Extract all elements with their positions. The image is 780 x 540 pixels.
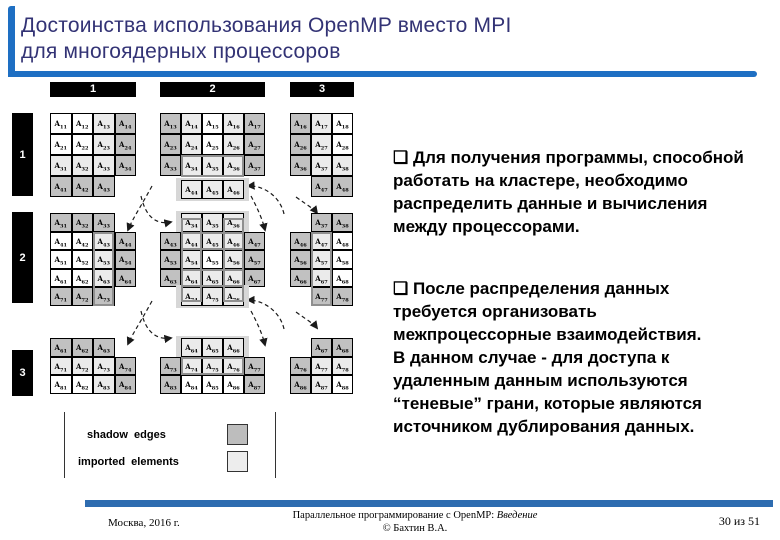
- matrix-cell-A76: A76: [290, 357, 311, 376]
- matrix-cell-A55: A55: [202, 250, 223, 269]
- matrix-cell-A83: A83: [93, 375, 115, 394]
- matrix-cell-A32: A32: [72, 213, 94, 232]
- matrix-cell-A43: A43: [93, 176, 115, 197]
- matrix-cell-A26: A26: [290, 134, 311, 155]
- exchange-outline-box: [181, 357, 244, 376]
- matrix-cell-A23: A23: [160, 134, 181, 155]
- matrix-cell-A44: A44: [115, 232, 137, 251]
- matrix-cell-A17: A17: [311, 113, 332, 134]
- matrix-cell-A67: A67: [311, 338, 332, 357]
- matrix-cell-A66: A66: [290, 269, 311, 288]
- legend-guide-line: [64, 412, 65, 478]
- matrix-cell-A33: A33: [160, 155, 181, 176]
- matrix-cell-A37: A37: [311, 155, 332, 176]
- exchange-outline-box: [223, 218, 244, 302]
- matrix-cell-A75: A75: [202, 287, 223, 306]
- matrix-cell-A11: A11: [50, 113, 72, 134]
- shadow-exchange-arrow: [128, 186, 152, 230]
- matrix-cell-A27: A27: [244, 134, 265, 155]
- matrix-cell-A15: A15: [202, 113, 223, 134]
- matrix-cell-A87: A87: [244, 375, 265, 394]
- matrix-cell-A56: A56: [290, 250, 311, 269]
- footer-author: © Бахтин В.А.: [250, 522, 580, 535]
- matrix-cell-A35: A35: [202, 213, 223, 232]
- matrix-cell-A16: A16: [223, 113, 244, 134]
- footer-location-date: Москва, 2016 г.: [108, 517, 180, 529]
- matrix-cell-A71: A71: [50, 357, 72, 376]
- matrix-cell-A65: A65: [202, 338, 223, 357]
- shadow-exchange-arrow: [248, 186, 284, 214]
- matrix-cell-A28: A28: [332, 134, 353, 155]
- matrix-cell-A83: A83: [160, 375, 181, 394]
- matrix-cell-A78: A78: [332, 357, 353, 376]
- matrix-cell-A26: A26: [223, 134, 244, 155]
- matrix-cell-A64: A64: [115, 269, 137, 288]
- exchange-outline-box: [181, 218, 202, 302]
- matrix-cell-A33: A33: [93, 213, 115, 232]
- exchange-outline-box: [311, 232, 332, 306]
- matrix-cell-A24: A24: [181, 134, 202, 155]
- matrix-cell-A37: A37: [244, 155, 265, 176]
- matrix-cell-A57: A57: [244, 250, 265, 269]
- processor-row-bar-2: 2: [12, 212, 33, 303]
- matrix-cell-A13: A13: [160, 113, 181, 134]
- matrix-cell-A44: A44: [181, 180, 202, 199]
- matrix-cell-A25: A25: [202, 134, 223, 155]
- matrix-cell-A46: A46: [290, 232, 311, 251]
- matrix-cell-A84: A84: [181, 375, 202, 394]
- matrix-cell-A47: A47: [311, 176, 332, 197]
- matrix-cell-A84: A84: [115, 375, 137, 394]
- matrix-cell-A62: A62: [72, 269, 94, 288]
- footer-course-title-italic: Введение: [497, 510, 538, 521]
- matrix-cell-A42: A42: [72, 232, 94, 251]
- matrix-cell-A41: A41: [50, 176, 72, 197]
- matrix-cell-A68: A68: [332, 269, 353, 288]
- matrix-cell-A42: A42: [72, 176, 94, 197]
- matrix-cell-A66: A66: [223, 338, 244, 357]
- matrix-cell-A36: A36: [290, 155, 311, 176]
- matrix-cell-A34: A34: [115, 155, 137, 176]
- matrix-cell-A23: A23: [93, 134, 115, 155]
- matrix-cell-A43: A43: [160, 232, 181, 251]
- matrix-cell-A87: A87: [311, 375, 332, 394]
- exchange-outline-box: [93, 232, 115, 306]
- matrix-cell-A32: A32: [72, 155, 94, 176]
- matrix-cell-A85: A85: [202, 375, 223, 394]
- matrix-cell-A72: A72: [72, 287, 94, 306]
- matrix-cell-A27: A27: [311, 134, 332, 155]
- matrix-cell-A38: A38: [332, 155, 353, 176]
- processor-row-bar-1: 1: [12, 113, 33, 196]
- matrix-cell-A37: A37: [311, 213, 332, 232]
- matrix-cell-A53: A53: [160, 250, 181, 269]
- processor-row-bar-3: 3: [12, 350, 33, 396]
- matrix-cell-A17: A17: [244, 113, 265, 134]
- matrix-cell-A13: A13: [93, 113, 115, 134]
- matrix-cell-A41: A41: [50, 232, 72, 251]
- matrix-cell-A81: A81: [50, 375, 72, 394]
- matrix-cell-A31: A31: [50, 213, 72, 232]
- matrix-cell-A14: A14: [115, 113, 137, 134]
- matrix-cell-A72: A72: [72, 357, 94, 376]
- slide: Достоинства использования OpenMP вместо …: [0, 0, 780, 540]
- legend-imported-elements-label: imported elements: [78, 456, 179, 468]
- matrix-cell-A73: A73: [160, 357, 181, 376]
- matrix-cell-A73: A73: [93, 357, 115, 376]
- bullet-distribute-data: ❑ Для получения программы, способной раб…: [393, 146, 779, 238]
- matrix-cell-A47: A47: [244, 232, 265, 251]
- matrix-cell-A68: A68: [332, 338, 353, 357]
- shadow-exchange-arrow: [296, 197, 317, 213]
- processor-column-bar-2: 2: [160, 82, 265, 97]
- matrix-cell-A22: A22: [72, 134, 94, 155]
- legend-shadow-edges-swatch: [227, 424, 248, 445]
- matrix-cell-A61: A61: [50, 338, 72, 357]
- matrix-cell-A31: A31: [50, 155, 72, 176]
- matrix-cell-A86: A86: [290, 375, 311, 394]
- matrix-cell-A21: A21: [50, 134, 72, 155]
- processor-column-bar-3: 3: [290, 82, 354, 97]
- shadow-exchange-arrow: [296, 312, 317, 328]
- matrix-cell-A48: A48: [332, 176, 353, 197]
- processor-column-bar-1: 1: [50, 82, 136, 97]
- bullet-shadow-edges: ❑ После распределения данных требуется о…: [393, 277, 779, 438]
- matrix-cell-A77: A77: [244, 357, 265, 376]
- matrix-cell-A14: A14: [181, 113, 202, 134]
- matrix-cell-A16: A16: [290, 113, 311, 134]
- shadow-exchange-arrow: [128, 301, 152, 344]
- matrix-cell-A71: A71: [50, 287, 72, 306]
- matrix-cell-A78: A78: [332, 287, 353, 306]
- footer-course-title: Параллельное программирование с OpenMP: …: [250, 509, 580, 535]
- footer-course-title-plain: Параллельное программирование с OpenMP:: [293, 510, 497, 521]
- matrix-cell-A52: A52: [72, 250, 94, 269]
- matrix-cell-A48: A48: [332, 232, 353, 251]
- matrix-cell-A38: A38: [332, 213, 353, 232]
- legend-shadow-edges-label: shadow edges: [87, 429, 166, 441]
- matrix-cell-A18: A18: [332, 113, 353, 134]
- matrix-cell-A64: A64: [181, 338, 202, 357]
- matrix-cell-A62: A62: [72, 338, 94, 357]
- matrix-cell-A82: A82: [72, 375, 94, 394]
- matrix-cell-A58: A58: [332, 250, 353, 269]
- shadow-exchange-arrow: [251, 311, 265, 345]
- matrix-cell-A51: A51: [50, 250, 72, 269]
- matrix-cell-A61: A61: [50, 269, 72, 288]
- matrix-cell-A46: A46: [223, 180, 244, 199]
- matrix-cell-A45: A45: [202, 180, 223, 199]
- matrix-cell-A74: A74: [115, 357, 137, 376]
- shadow-exchange-arrow: [141, 311, 171, 338]
- matrix-cell-A12: A12: [72, 113, 94, 134]
- footer-page-number: 30 из 51: [719, 514, 760, 529]
- footer-rule: [85, 500, 773, 507]
- matrix-cell-A24: A24: [115, 134, 137, 155]
- matrix-cell-A54: A54: [115, 250, 137, 269]
- legend-guide-line: [275, 412, 276, 478]
- matrix-cell-A86: A86: [223, 375, 244, 394]
- shadow-exchange-arrow: [251, 196, 265, 230]
- legend-imported-elements-swatch: [227, 451, 248, 472]
- matrix-cell-A33: A33: [93, 155, 115, 176]
- exchange-outline-box: [181, 155, 244, 177]
- matrix-cell-A77: A77: [311, 357, 332, 376]
- shadow-exchange-arrow: [141, 196, 171, 223]
- matrix-cell-A88: A88: [332, 375, 353, 394]
- matrix-cell-A63: A63: [93, 338, 115, 357]
- shadow-exchange-arrow: [248, 300, 284, 329]
